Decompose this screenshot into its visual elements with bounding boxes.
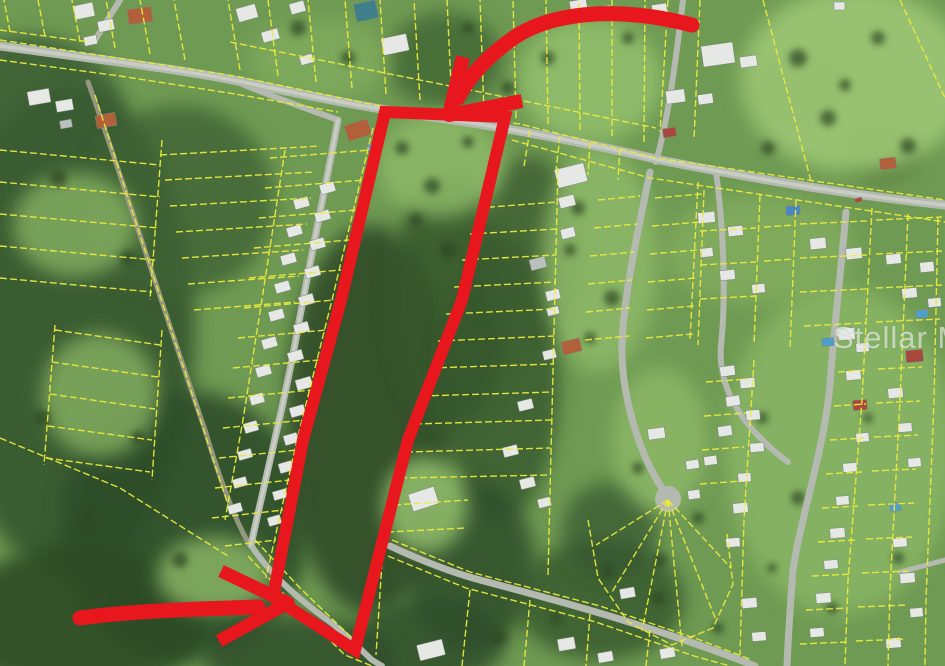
stellar-mls-watermark: Stellar MLS [833,320,945,356]
satellite-basemap [0,0,945,666]
vegetation-layer [0,0,945,666]
aerial-map-viewport: Stellar MLS [0,0,945,666]
